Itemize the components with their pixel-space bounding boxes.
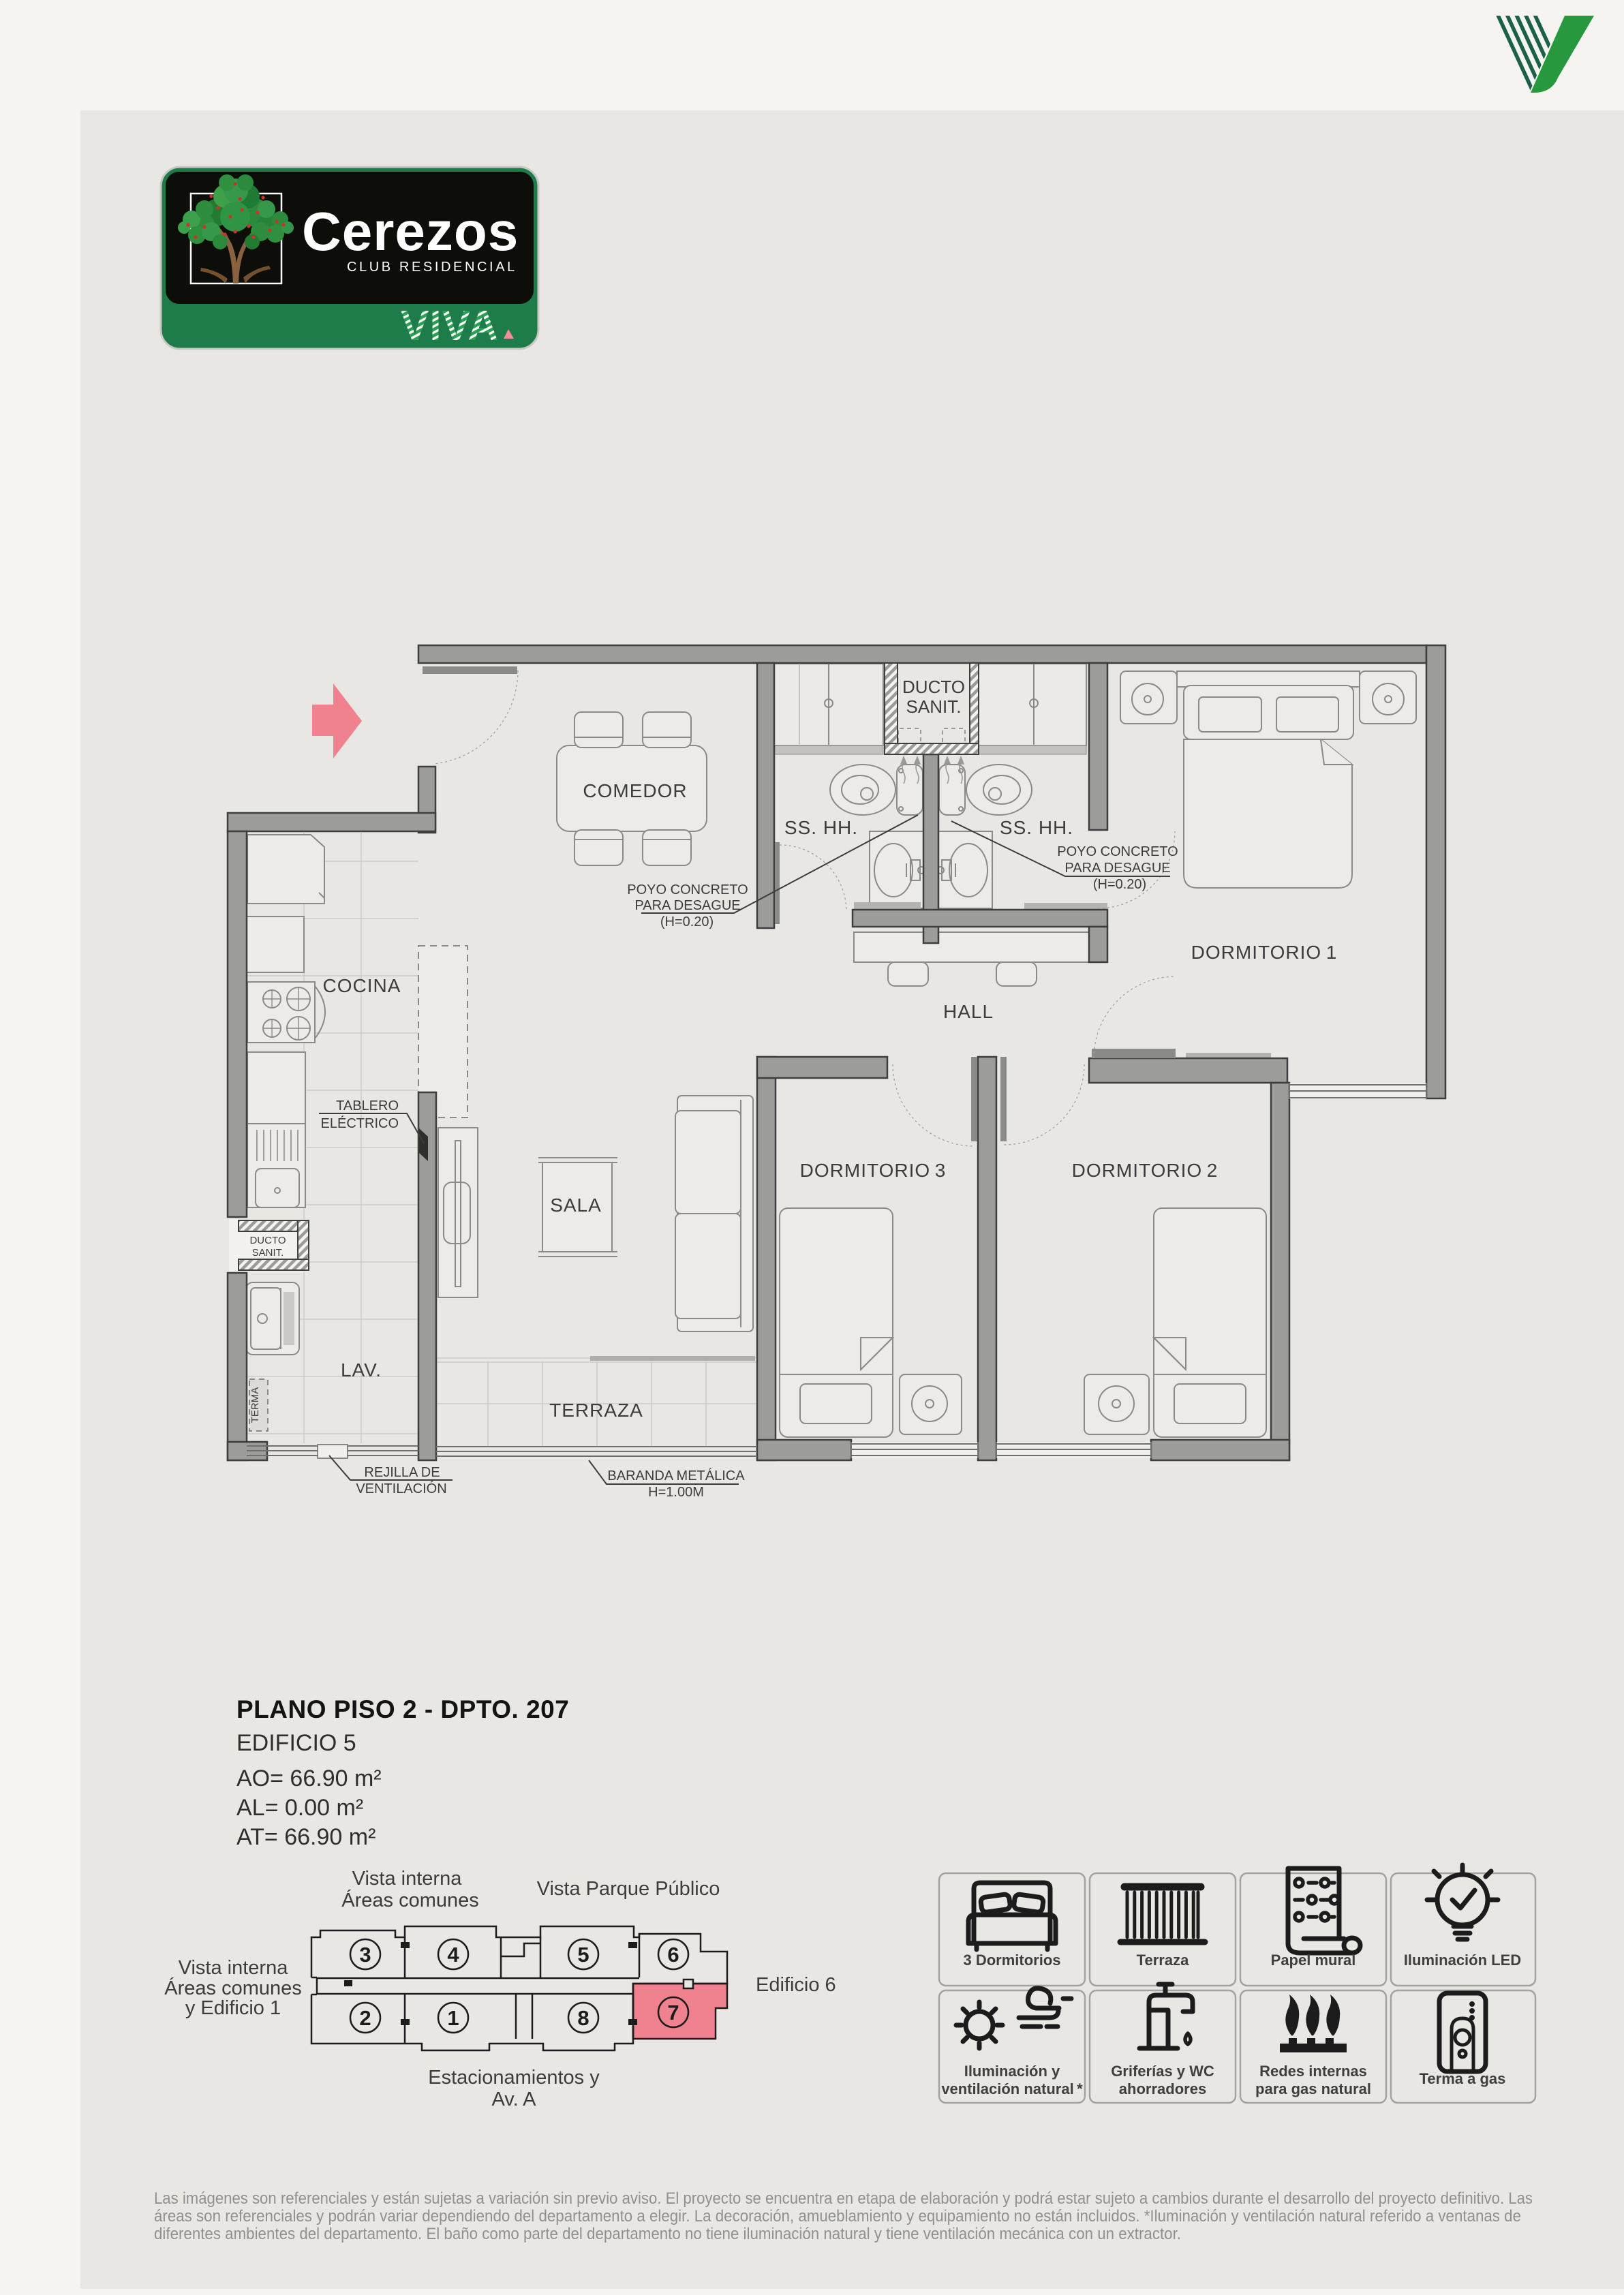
svg-text:ventilación natural *: ventilación natural * [941,2080,1083,2097]
svg-text:AO= 66.90 m²: AO= 66.90 m² [236,1766,382,1791]
svg-text:PARA DESAGUE: PARA DESAGUE [1064,861,1170,876]
svg-text:Las imágenes son referenciales: Las imágenes son referenciales y están s… [154,2189,1533,2208]
svg-text:SS. HH.: SS. HH. [784,817,858,838]
svg-text:8: 8 [577,2006,589,2030]
svg-text:Av. A: Av. A [491,2089,536,2110]
svg-text:DUCTO: DUCTO [902,677,965,697]
svg-text:5: 5 [577,1943,589,1967]
svg-text:POYO CONCRETO: POYO CONCRETO [627,882,748,897]
svg-text:7: 7 [667,2001,679,2024]
svg-text:Áreas comunes: Áreas comunes [341,1889,479,1911]
svg-text:Cerezos: Cerezos [302,201,519,262]
svg-text:Redes internas: Redes internas [1259,2063,1367,2080]
svg-text:SANIT.: SANIT. [906,696,962,717]
svg-text:COMEDOR: COMEDOR [583,780,687,801]
svg-text:Áreas comunes: Áreas comunes [164,1977,302,1999]
svg-text:HALL: HALL [943,1001,994,1022]
svg-text:(H=0.20): (H=0.20) [660,914,714,929]
svg-text:para gas natural: para gas natural [1255,2080,1371,2097]
svg-text:DORMITORIO 2: DORMITORIO 2 [1072,1160,1219,1181]
svg-text:Iluminación y: Iluminación y [964,2063,1060,2080]
svg-text:3 Dormitorios: 3 Dormitorios [963,1952,1060,1969]
svg-text:Edificio 6: Edificio 6 [756,1974,836,1996]
svg-text:VENTILACIÓN: VENTILACIÓN [356,1481,446,1496]
svg-text:Griferías y WC: Griferías y WC [1111,2063,1214,2080]
svg-text:PARA DESAGUE: PARA DESAGUE [634,898,740,913]
svg-text:DORMITORIO 1: DORMITORIO 1 [1191,942,1338,963]
svg-text:TERMA: TERMA [249,1387,261,1423]
svg-text:PLANO PISO 2 - DPTO. 207: PLANO PISO 2 - DPTO. 207 [236,1695,569,1723]
svg-text:Terma a gas: Terma a gas [1420,2070,1506,2087]
svg-text:Vista interna: Vista interna [352,1868,463,1890]
svg-text:Vista Parque Público: Vista Parque Público [537,1878,720,1900]
svg-text:4: 4 [447,1943,459,1967]
svg-text:áreas son referenciales y podr: áreas son referenciales y podrán variar … [154,2207,1521,2225]
svg-text:COCINA: COCINA [323,975,401,996]
svg-text:Papel mural: Papel mural [1271,1952,1356,1969]
svg-text:Terraza: Terraza [1137,1952,1189,1969]
svg-text:TERRAZA: TERRAZA [549,1400,643,1421]
svg-text:diferentes ambientes del depar: diferentes ambientes del departamento. E… [154,2225,1181,2243]
svg-text:Iluminación LED: Iluminación LED [1404,1952,1521,1969]
svg-text:3: 3 [359,1943,371,1967]
svg-text:ELÉCTRICO: ELÉCTRICO [321,1115,399,1131]
svg-text:SALA: SALA [550,1195,602,1216]
svg-text:DUCTO: DUCTO [249,1235,286,1246]
svg-text:SANIT.: SANIT. [252,1247,284,1259]
svg-text:REJILLA DE: REJILLA DE [364,1465,440,1480]
svg-text:6: 6 [667,1943,679,1967]
svg-text:H=1.00M: H=1.00M [648,1485,704,1500]
svg-text:LAV.: LAV. [341,1359,382,1381]
svg-text:CLUB RESIDENCIAL: CLUB RESIDENCIAL [347,260,517,275]
svg-text:AL= 0.00 m²: AL= 0.00 m² [236,1795,363,1821]
svg-text:POYO CONCRETO: POYO CONCRETO [1057,844,1178,859]
svg-text:VIVA: VIVA [401,303,499,350]
svg-text:1: 1 [447,2006,459,2030]
svg-text:TABLERO: TABLERO [336,1098,399,1113]
svg-text:BARANDA METÁLICA: BARANDA METÁLICA [607,1468,745,1483]
svg-text:ahorradores: ahorradores [1119,2080,1206,2097]
svg-text:(H=0.20): (H=0.20) [1093,877,1146,892]
svg-text:AT= 66.90 m²: AT= 66.90 m² [236,1824,376,1850]
svg-text:Vista interna: Vista interna [179,1957,289,1979]
svg-text:Estacionamientos y: Estacionamientos y [428,2067,600,2089]
svg-text:SS. HH.: SS. HH. [1000,817,1073,838]
svg-text:2: 2 [359,2006,371,2030]
svg-text:y Edificio 1: y Edificio 1 [185,1997,281,2019]
svg-text:EDIFICIO 5: EDIFICIO 5 [236,1730,356,1756]
svg-text:DORMITORIO 3: DORMITORIO 3 [800,1160,947,1181]
